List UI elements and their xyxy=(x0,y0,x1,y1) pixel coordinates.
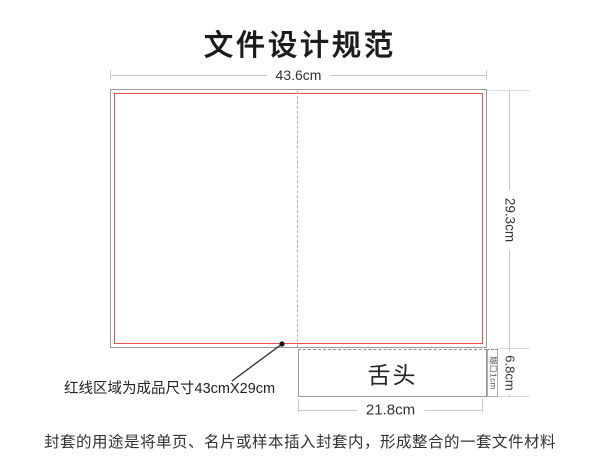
leader-dot xyxy=(279,341,284,346)
top-width-dimension-label: 43.6cm xyxy=(267,67,331,83)
design-spec-page: 文件设计规范 43.6cm 29.3cm 舌头 糊口1cm 6.8cm 21.8… xyxy=(0,0,600,463)
usage-caption: 封套的用途是将单页、名片或样本插入封套内，形成整合的一套文件材料 xyxy=(0,430,600,452)
finished-size-annotation: 红线区域为成品尺寸43cmX29cm xyxy=(64,377,275,398)
dimension-tick xyxy=(298,399,299,412)
center-fold-dashed-line xyxy=(297,91,298,347)
dimension-tick xyxy=(486,70,487,80)
extension-line-middle xyxy=(498,348,530,349)
finished-size-red-rect xyxy=(114,93,483,344)
dimension-tick xyxy=(110,70,111,80)
tongue-height-dimension: 6.8cm xyxy=(509,349,510,397)
right-height-dimension-label: 29.3cm xyxy=(503,189,518,249)
extension-line-bottom xyxy=(498,396,530,397)
top-width-dimension: 43.6cm xyxy=(110,68,487,82)
dimension-tick xyxy=(482,399,483,412)
right-height-dimension: 29.3cm xyxy=(509,90,510,349)
glue-strip-box: 糊口1cm xyxy=(487,349,498,397)
tongue-flap-label: 舌头 xyxy=(368,356,418,390)
tongue-flap-box: 舌头 xyxy=(298,349,487,397)
tongue-width-dimension-label: 21.8cm xyxy=(357,402,424,419)
page-title: 文件设计规范 xyxy=(0,22,600,64)
tongue-width-dimension: 21.8cm xyxy=(298,403,483,417)
glue-strip-label: 糊口1cm xyxy=(487,356,498,390)
tongue-height-dimension-label: 6.8cm xyxy=(503,351,518,394)
